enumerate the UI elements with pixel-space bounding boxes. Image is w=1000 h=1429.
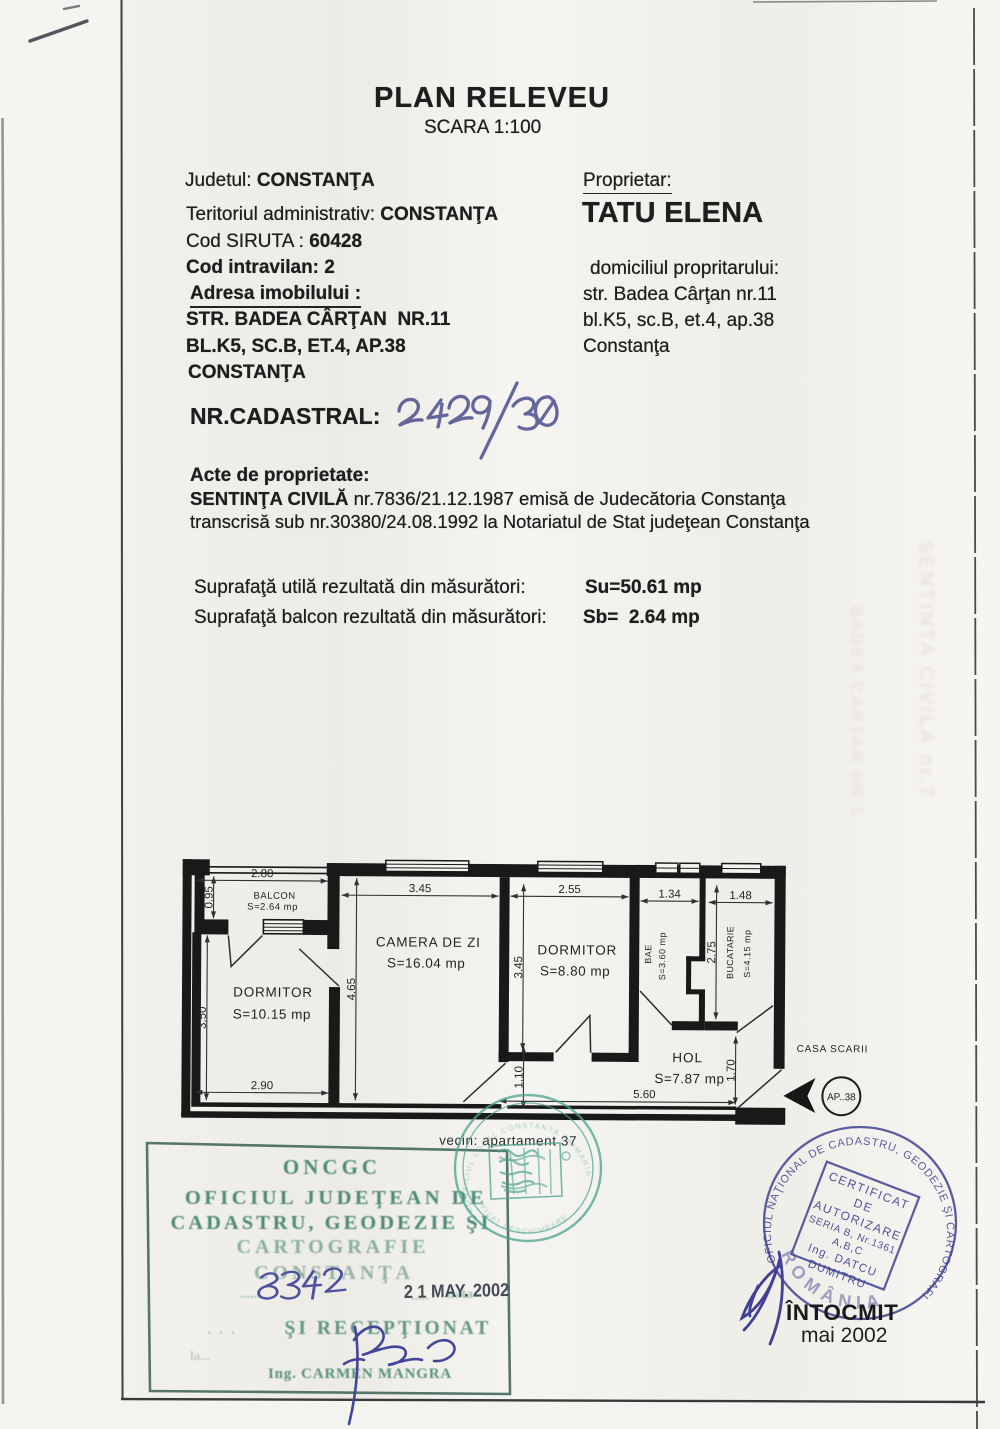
svg-text:2.90: 2.90 xyxy=(251,1080,273,1092)
svg-text:3.45: 3.45 xyxy=(513,956,525,978)
svg-text:3.50: 3.50 xyxy=(197,1007,209,1029)
svg-text:1.34: 1.34 xyxy=(658,889,681,901)
svg-text:SENTINTA CIVILA nr.7: SENTINTA CIVILA nr.7 xyxy=(915,540,937,799)
svg-text:ÎNTOCMIT: ÎNTOCMIT xyxy=(785,1300,898,1325)
svg-text:ONCGC: ONCGC xyxy=(283,1155,381,1179)
svg-text:OFICIUL JUDEŢEAN DE: OFICIUL JUDEŢEAN DE xyxy=(185,1187,487,1209)
svg-text:BUCATARIE: BUCATARIE xyxy=(725,926,735,979)
svg-text:4.65: 4.65 xyxy=(346,978,358,1000)
svg-text:CONSTANŢA: CONSTANŢA xyxy=(254,1262,414,1284)
svg-text:S=10.15 mp: S=10.15 mp xyxy=(233,1006,311,1021)
svg-text:2.80: 2.80 xyxy=(251,868,273,880)
svg-text:S=2.64 mp: S=2.64 mp xyxy=(247,902,298,913)
svg-text:S=8.80 mp: S=8.80 mp xyxy=(540,963,610,978)
svg-text:. . .: . . . xyxy=(207,1321,237,1338)
svg-text:1.10: 1.10 xyxy=(513,1066,525,1088)
svg-text:5.60: 5.60 xyxy=(633,1089,655,1101)
svg-text:Ing. CARMEN MANGRA: Ing. CARMEN MANGRA xyxy=(268,1366,452,1382)
svg-text:2 1 MAY. 2002: 2 1 MAY. 2002 xyxy=(404,1279,509,1302)
svg-text:S=3.60 mp: S=3.60 mp xyxy=(657,932,667,980)
svg-text:S=4.15 mp: S=4.15 mp xyxy=(742,929,752,977)
svg-text:CAMERA DE ZI: CAMERA DE ZI xyxy=(376,934,481,950)
svg-text:DORMITOR: DORMITOR xyxy=(537,942,617,957)
svg-text:2.75: 2.75 xyxy=(706,941,718,963)
svg-text:CASA SCARII: CASA SCARII xyxy=(797,1044,869,1055)
svg-text:BAE: BAE xyxy=(643,944,653,964)
svg-text:3.45: 3.45 xyxy=(409,883,431,895)
svg-text:CADASTRU, GEODEZIE ŞI: CADASTRU, GEODEZIE ŞI xyxy=(170,1212,491,1234)
svg-text:BADEA CARTAN NR.1: BADEA CARTAN NR.1 xyxy=(847,605,866,818)
svg-text:CARTOGRAFIE: CARTOGRAFIE xyxy=(237,1236,430,1258)
svg-text:1.48: 1.48 xyxy=(729,890,751,902)
svg-text:HOL: HOL xyxy=(672,1050,703,1065)
svg-text:S=16.04 mp: S=16.04 mp xyxy=(387,955,465,970)
svg-text:1.70: 1.70 xyxy=(725,1059,737,1081)
svg-text:AP..38: AP..38 xyxy=(827,1092,856,1103)
svg-text:BALCON: BALCON xyxy=(254,891,296,902)
svg-text:mai 2002: mai 2002 xyxy=(801,1324,887,1347)
svg-text:la...: la... xyxy=(190,1348,210,1363)
svg-text:S=7.87 mp: S=7.87 mp xyxy=(654,1071,724,1086)
svg-text:0.95: 0.95 xyxy=(204,886,216,908)
svg-text:ŞI RECEPŢIONAT: ŞI RECEPŢIONAT xyxy=(285,1318,492,1339)
svg-text:DORMITOR: DORMITOR xyxy=(233,984,313,999)
svg-text:2.55: 2.55 xyxy=(558,884,580,896)
